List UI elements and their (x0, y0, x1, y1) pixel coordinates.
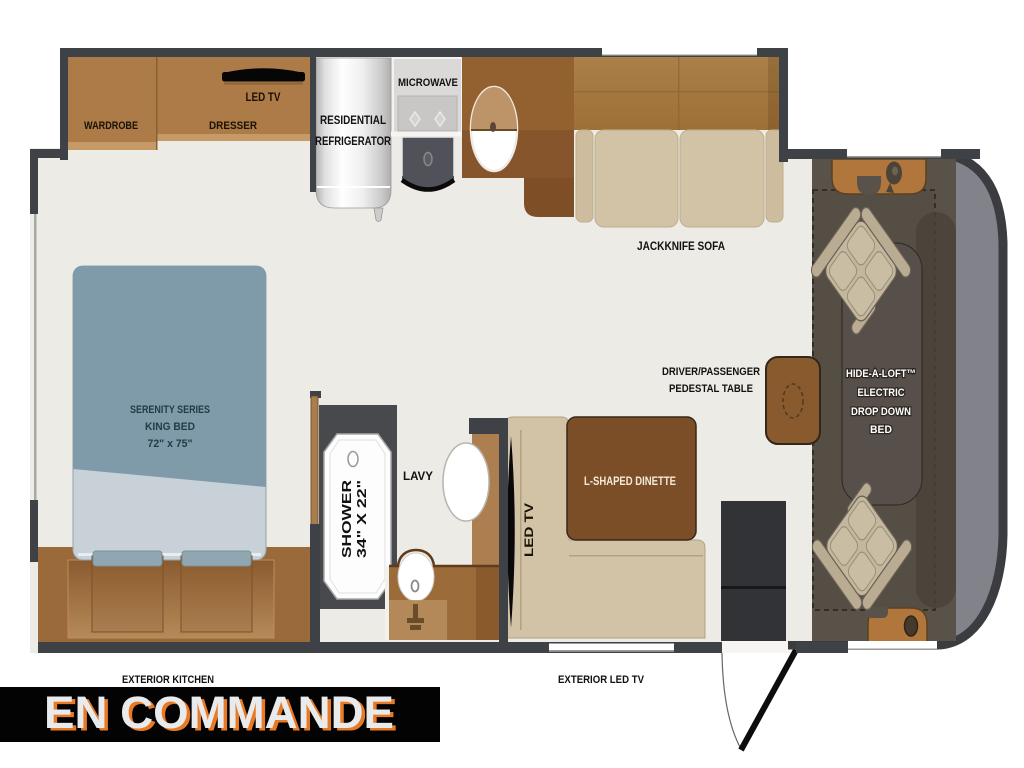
svg-text:EXTERIOR KITCHEN: EXTERIOR KITCHEN (122, 674, 214, 686)
svg-text:ELECTRIC: ELECTRIC (858, 387, 905, 399)
svg-text:BED: BED (870, 424, 892, 436)
svg-text:72" x 75": 72" x 75" (148, 438, 193, 450)
svg-text:KING BED: KING BED (145, 421, 195, 433)
svg-text:EN COMMANDE: EN COMMANDE (44, 687, 394, 738)
svg-text:DROP DOWN: DROP DOWN (851, 406, 911, 418)
svg-text:HIDE-A-LOFT™: HIDE-A-LOFT™ (846, 368, 916, 380)
svg-text:RESIDENTIAL: RESIDENTIAL (320, 115, 386, 127)
svg-text:JACKKNIFE SOFA: JACKKNIFE SOFA (637, 241, 725, 253)
svg-text:LED TV: LED TV (522, 503, 536, 557)
svg-text:LAVY: LAVY (403, 471, 433, 483)
svg-text:REFRIGERATOR: REFRIGERATOR (315, 136, 392, 148)
svg-text:DRIVER/PASSENGER: DRIVER/PASSENGER (662, 366, 760, 378)
svg-text:EXTERIOR LED TV: EXTERIOR LED TV (558, 674, 645, 686)
svg-text:SHOWER: SHOWER (339, 479, 354, 558)
svg-text:PEDESTAL TABLE: PEDESTAL TABLE (669, 383, 753, 395)
svg-text:L-SHAPED DINETTE: L-SHAPED DINETTE (584, 476, 676, 488)
svg-text:MICROWAVE: MICROWAVE (398, 77, 458, 89)
svg-text:DRESSER: DRESSER (209, 120, 257, 132)
svg-text:LED TV: LED TV (246, 90, 281, 104)
svg-text:34" X 22": 34" X 22" (354, 480, 369, 558)
svg-text:SERENITY SERIES: SERENITY SERIES (130, 404, 210, 416)
svg-text:WARDROBE: WARDROBE (84, 120, 138, 132)
